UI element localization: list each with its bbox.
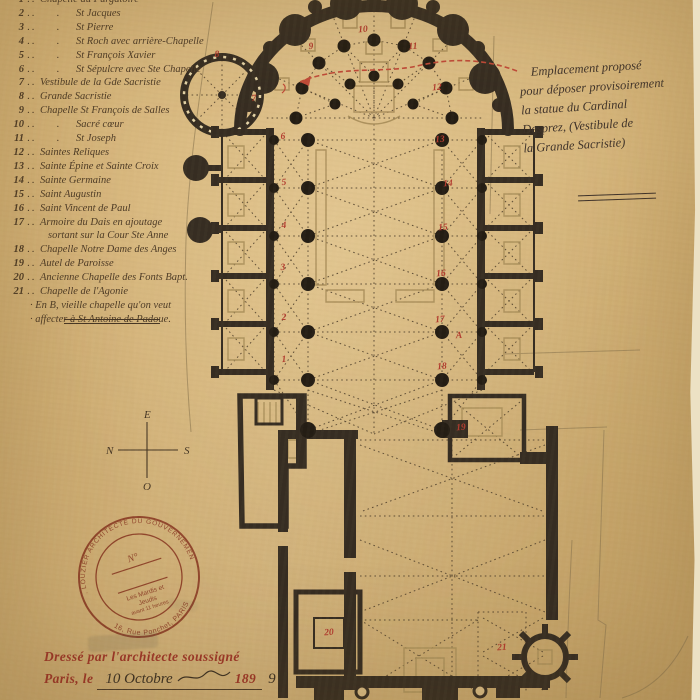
compass-south: S bbox=[184, 445, 190, 457]
column-dots bbox=[269, 34, 487, 439]
legend-item: 11...St Joseph bbox=[6, 132, 242, 146]
scanned-plan-page: { "document_kind": "Plan d'architecte — … bbox=[0, 0, 700, 700]
stair-box bbox=[256, 398, 282, 424]
printed-attestation: Dressé par l'architecte soussigné bbox=[44, 649, 276, 665]
sacristy-block bbox=[240, 396, 304, 526]
legend-item: 16..Saint Vincent de Paul bbox=[6, 202, 242, 216]
compass-north: N bbox=[105, 445, 114, 457]
legend-item: 14..Sainte Germaine bbox=[6, 174, 242, 188]
compass-rose: E N S O bbox=[104, 406, 196, 492]
legend-item: 18..Chapelle Notre Dame des Anges bbox=[6, 243, 242, 257]
handwritten-year-digit: 9 bbox=[268, 671, 276, 687]
legend-item: 6...St Sépulcre avec Ste Chapelle bbox=[6, 63, 242, 77]
legend-item: 12..Saintes Reliques bbox=[6, 146, 242, 160]
handwritten-date: 10 Octobre bbox=[105, 671, 172, 687]
legend-item: 1..Chapelle du Purgatoire bbox=[6, 0, 242, 7]
signature-flourish bbox=[177, 670, 231, 686]
date-prefix: Paris, le bbox=[44, 671, 93, 686]
legend-item: 15..Saint Augustin bbox=[6, 188, 242, 202]
chapel-20-frame bbox=[314, 618, 344, 648]
choir-stalls bbox=[316, 150, 444, 302]
legend-item: 4...St Roch avec arrière-Chapelle bbox=[6, 35, 242, 49]
signature-block: Dressé par l'architecte soussigné Paris,… bbox=[44, 649, 276, 690]
legend-item: 21..Chapelle de l'Agonie bbox=[6, 285, 242, 299]
aisle-walls bbox=[266, 128, 485, 390]
legend-item: 5...St François Xavier bbox=[6, 49, 242, 63]
legend-underline bbox=[64, 319, 160, 324]
legend-item: 20..Ancienne Chapelle des Fonts Bapt. bbox=[6, 271, 242, 285]
legend-footnote-line: · En B, vieille chapelle qu'on veut bbox=[30, 299, 242, 313]
masonry-walls bbox=[183, 0, 578, 700]
stair-turret bbox=[512, 624, 578, 690]
statue-placement-note: Emplacement proposé pour déposer proviso… bbox=[518, 53, 700, 159]
legend-list: 1..Chapelle du Purgatoire2...St Jacques3… bbox=[6, 0, 242, 327]
legend-item: 13..Sainte Épine et Sainte Croix bbox=[6, 160, 242, 174]
legend: 1..Chapelle du Purgatoire2...St Jacques3… bbox=[6, 0, 242, 327]
legend-item: 3...St Pierre bbox=[6, 21, 242, 35]
portal-pier bbox=[474, 685, 486, 697]
legend-item: 8..Grande Sacristie bbox=[6, 90, 242, 104]
legend-item: 10...Sacré cœur bbox=[6, 118, 242, 132]
legend-item: 9..Chapelle St François de Salles bbox=[6, 104, 242, 118]
legend-item-continuation: sortant sur la Cour Ste Anne bbox=[48, 229, 242, 243]
legend-item: 17..Armoire du Dais en ajoutage bbox=[6, 216, 242, 230]
portal-pier bbox=[356, 686, 368, 698]
compass-west: O bbox=[143, 481, 151, 492]
stamp-no-label: N° bbox=[125, 552, 139, 566]
legend-item: 19..Autel de Paroisse bbox=[6, 257, 242, 271]
legend-item: 7..Vestibule de la Gde Sacristie bbox=[6, 76, 242, 90]
legend-item: 2...St Jacques bbox=[6, 7, 242, 21]
architect-stamp: A. LOUZIER ARCHITECTE DU GOUVERNEMENT 16… bbox=[70, 508, 208, 646]
printed-year: 189 bbox=[235, 671, 256, 686]
compass-east: E bbox=[143, 409, 151, 421]
